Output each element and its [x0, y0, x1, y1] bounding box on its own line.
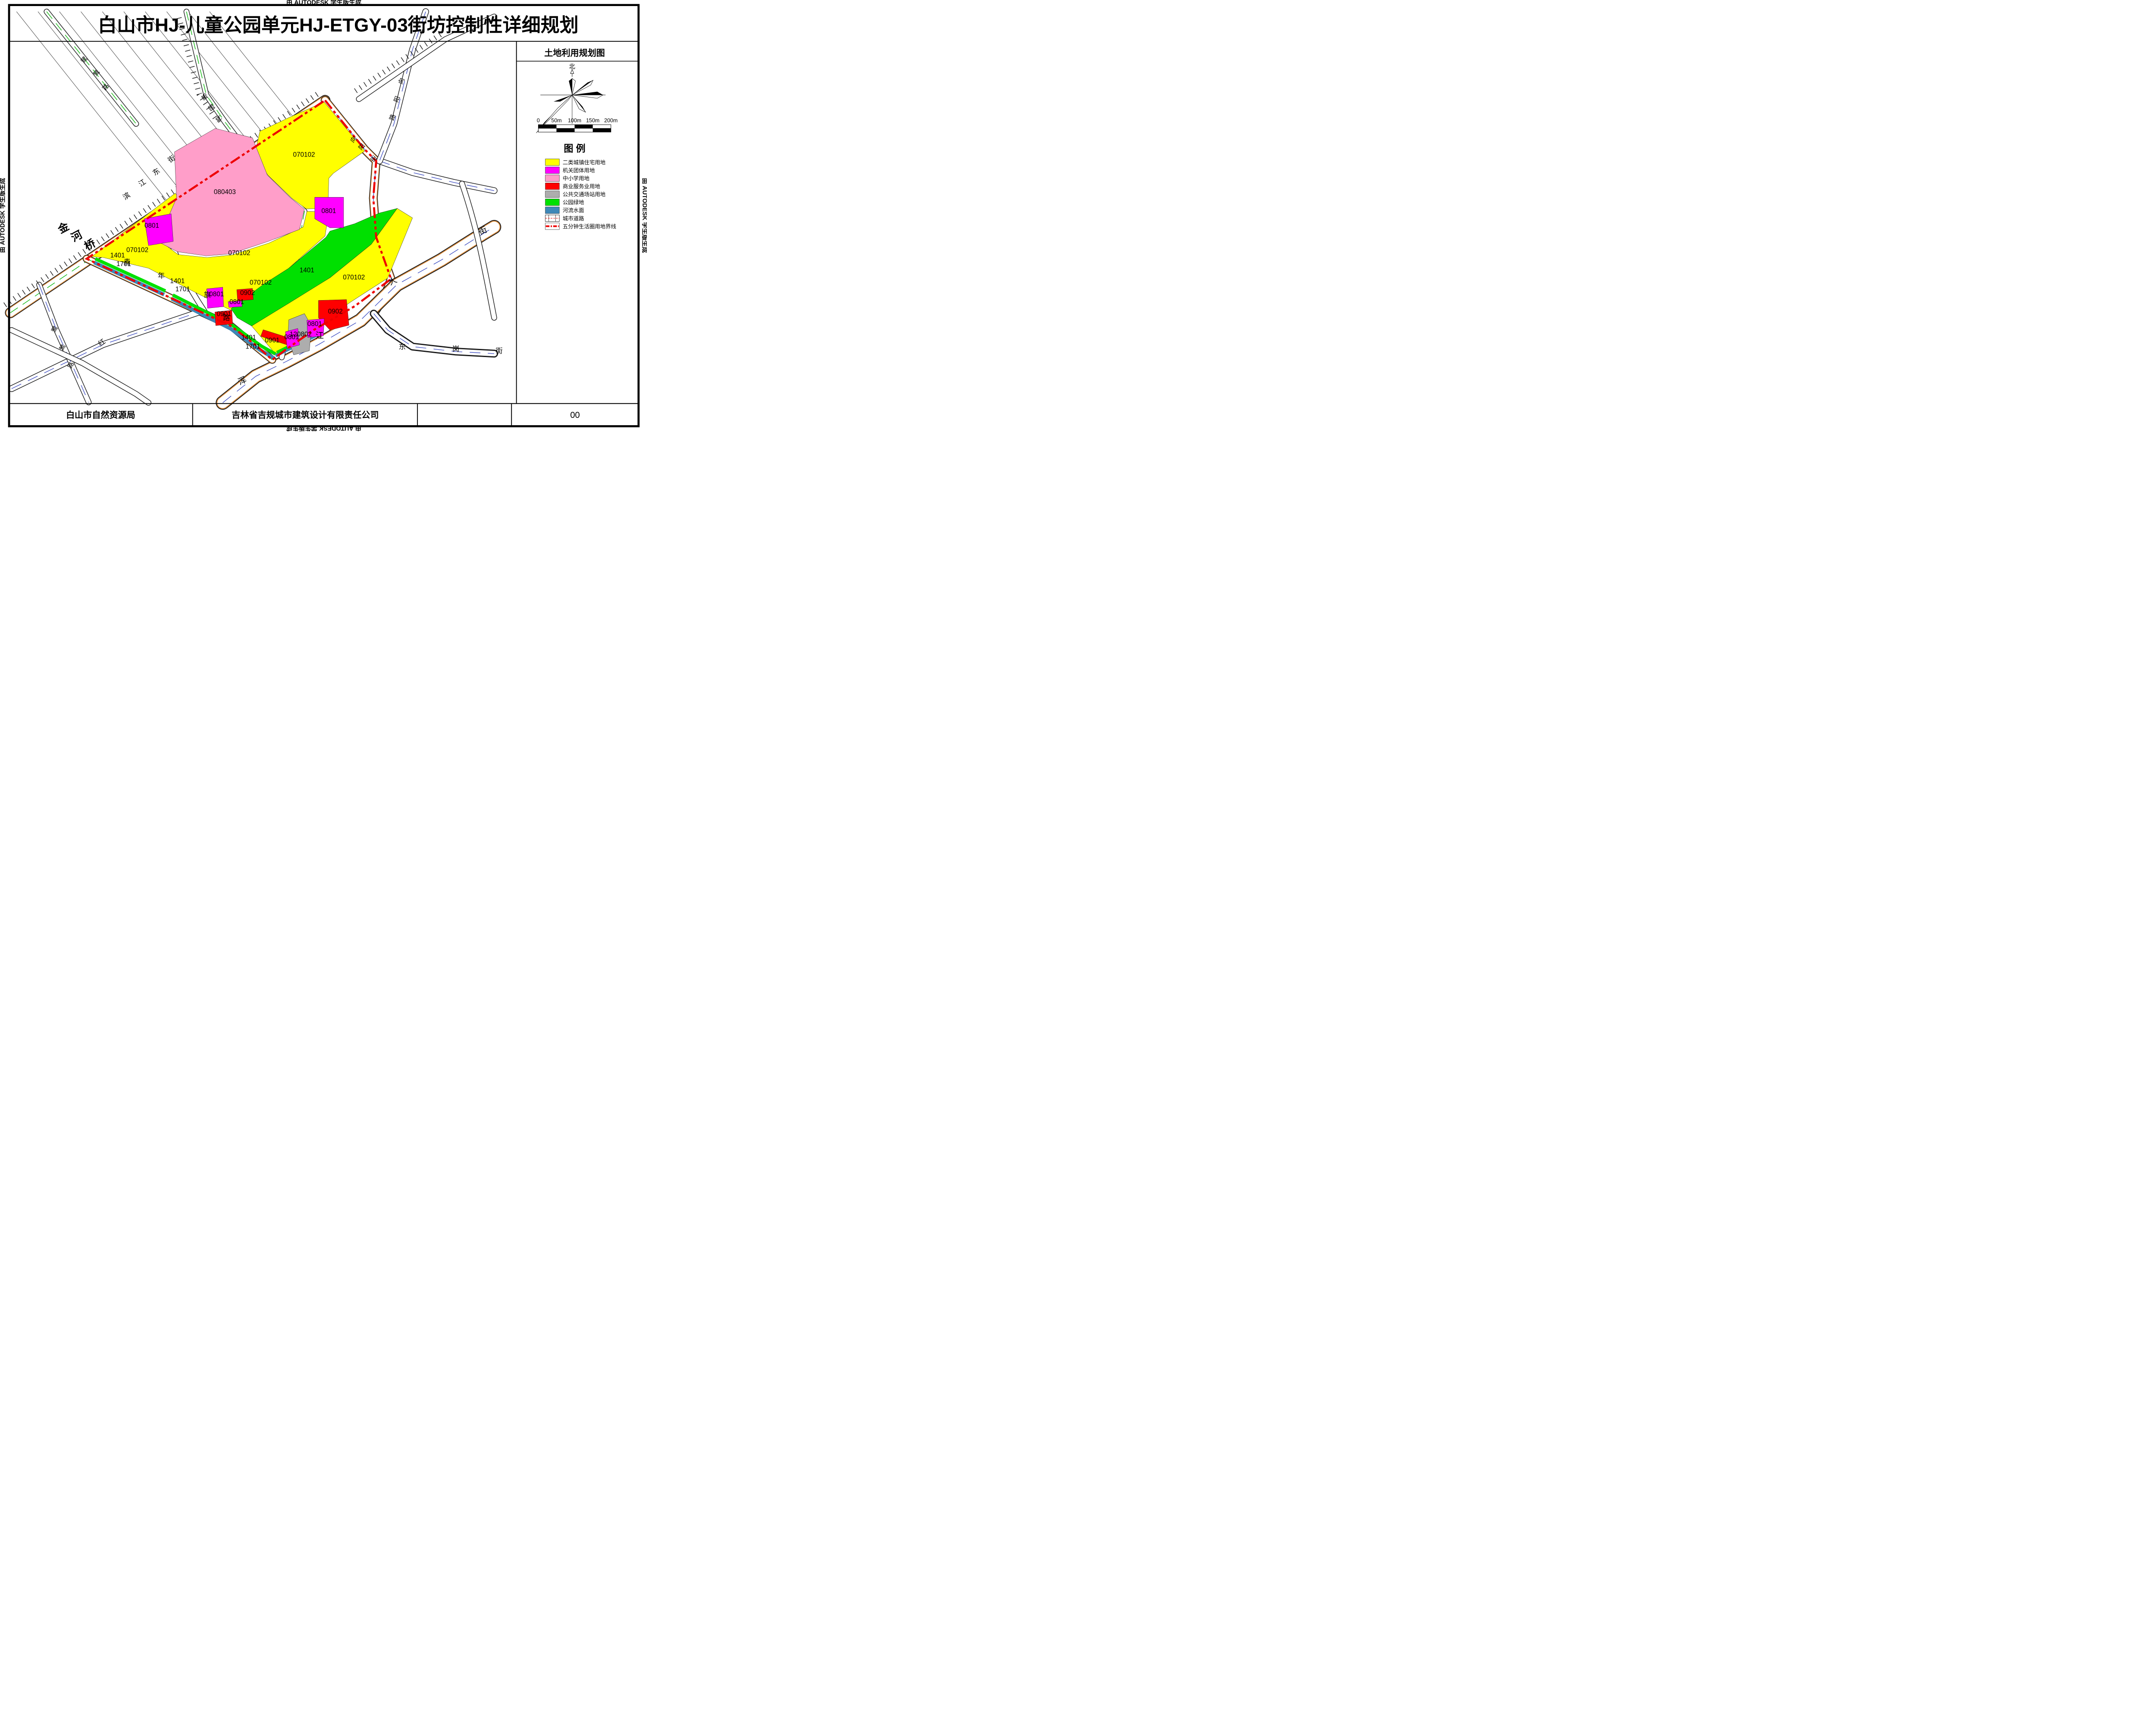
- legend-swatch: [545, 175, 560, 182]
- parcel-label-0902: 0902: [328, 308, 343, 315]
- map-canvas: 0701020701020701020701020701020804030801…: [0, 0, 647, 431]
- parcel-label-1401: 1401: [170, 277, 185, 285]
- watermark-right: 由 AUTODESK 学生版生成: [641, 178, 647, 253]
- legend-label: 机关团体用地: [563, 167, 595, 173]
- parcel-label-1401: 1401: [241, 334, 256, 341]
- street-name-char-东岗街: 东: [399, 343, 406, 351]
- legend-label: 二类城镇住宅用地: [563, 159, 605, 166]
- parcel-label-070102: 070102: [343, 274, 365, 281]
- sheet-title: 白山市HJ-儿童公园单元HJ-ETGY-03街坊控制性详细规划: [98, 15, 579, 36]
- street-name-char-青年路: 青: [124, 258, 131, 266]
- legend-item: 五分钟生活圈用地界线: [545, 223, 616, 229]
- road-donggang-street: [374, 314, 494, 354]
- legend-swatch: [545, 207, 560, 213]
- street-name-char-青年路: 路: [223, 314, 230, 322]
- parcel-label-0801: 0801: [229, 298, 244, 306]
- parcel-label-1401: 1401: [300, 267, 314, 274]
- parcel-label-0801: 0801: [144, 222, 159, 229]
- parcel-label-0801: 0801: [209, 291, 224, 298]
- footer-bar: 白山市自然资源局 吉林省吉规城市建筑设计有限责任公司 00: [66, 404, 580, 427]
- footer-company: 吉林省吉规城市建筑设计有限责任公司: [232, 410, 379, 420]
- parcel-label-080403: 080403: [214, 188, 236, 196]
- parcel-label-0902: 0902: [240, 289, 255, 297]
- legend-label: 城市道路: [563, 215, 584, 222]
- scale-label: 200m: [604, 117, 617, 123]
- parcel-label-0901: 0901: [265, 337, 279, 344]
- legend-item: 城市道路: [545, 215, 584, 221]
- street-name-char-滨江东街: 东: [151, 167, 162, 177]
- legend-item: 商业服务业用地: [545, 183, 600, 189]
- plan-sheet: 0701020701020701020701020701020804030801…: [0, 0, 647, 431]
- watermark-left: 由 AUTODESK 学生版生成: [0, 178, 6, 253]
- legend-swatch: [545, 167, 560, 173]
- street-name-char-滨江东街: 江: [137, 178, 147, 188]
- legend-rows: 二类城镇住宅用地机关团体用地中小学用地商业服务业用地公共交通场站用地公园绿地河流…: [545, 159, 616, 229]
- parcel-label-1401: 1401: [110, 252, 125, 259]
- legend-swatch: [545, 199, 560, 205]
- side-panel: 土地利用规划图 北 050m100m150m200m: [517, 47, 639, 229]
- footer-agency: 白山市自然资源局: [66, 410, 135, 420]
- parcel-label-070102: 070102: [293, 151, 315, 159]
- legend-item: 中小学用地: [545, 175, 589, 182]
- street-name-char-滨江东街: 滨: [122, 191, 132, 201]
- watermark-bottom: 由 AUTODESK 学生版生成: [286, 424, 361, 431]
- legend-item: 公园绿地: [545, 199, 584, 205]
- parcel-label-070102: 070102: [126, 247, 148, 254]
- parcel-label-0801: 0801: [321, 207, 336, 215]
- parcel-label-070102: 070102: [228, 249, 250, 257]
- scale-label: 150m: [586, 117, 599, 123]
- scale-label: 100m: [568, 117, 581, 123]
- street-name-char-东岗街: 街: [495, 347, 502, 355]
- legend-label: 公园绿地: [563, 199, 584, 206]
- legend-swatch: [545, 159, 560, 165]
- legend-title: 图 例: [564, 143, 586, 154]
- legend-item: 机关团体用地: [545, 167, 595, 173]
- legend-item: 二类城镇住宅用地: [545, 159, 606, 165]
- street-name-char-青年路: 年: [158, 272, 165, 280]
- street-name-char-红旗街: 旗: [204, 291, 211, 299]
- legend-item: 公共交通场站用地: [545, 191, 606, 198]
- legend-label: 商业服务业用地: [563, 183, 600, 190]
- scale-label: 50m: [551, 117, 561, 123]
- street-name-char-金河桥: 河: [69, 229, 84, 244]
- legend: 图 例 二类城镇住宅用地机关团体用地中小学用地商业服务业用地公共交通场站用地公园…: [545, 143, 616, 229]
- parcel-label-120802: 120802: [290, 331, 312, 338]
- legend-label: 五分钟生活圈用地界线: [563, 223, 616, 229]
- legend-swatch: [545, 191, 560, 198]
- footer-sheet-number: 00: [570, 411, 580, 420]
- legend-label: 公共交通场站用地: [563, 191, 605, 198]
- street-name-char-金河桥: 金: [55, 220, 71, 236]
- parcel-label-070102: 070102: [250, 279, 272, 286]
- road-bottomleft-cross: [12, 330, 149, 402]
- street-name-char-东岗街: 岗: [452, 345, 459, 353]
- parcel-label-1701: 1701: [245, 343, 260, 351]
- legend-item: 河流水面: [545, 207, 584, 213]
- street-name-char-浑江大街: 江: [316, 331, 324, 341]
- legend-label: 河流水面: [563, 207, 584, 213]
- parcel-label-1701: 1701: [175, 286, 190, 293]
- parcel-label-0801: 0801: [307, 320, 322, 328]
- scale-label: 0: [537, 117, 540, 123]
- road-east-west-north: [379, 161, 494, 191]
- watermark-top: 由 AUTODESK 学生版生成: [286, 0, 362, 6]
- map-area: 0701020701020701020701020701020804030801…: [5, 12, 502, 403]
- legend-label: 中小学用地: [563, 175, 589, 182]
- legend-swatch: [545, 183, 560, 189]
- panel-title: 土地利用规划图: [544, 47, 605, 58]
